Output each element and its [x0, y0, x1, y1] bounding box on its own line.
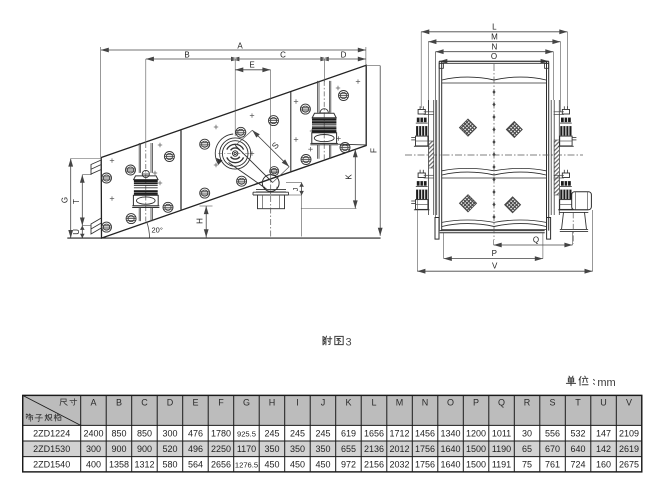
svg-text:900: 900: [137, 444, 152, 454]
svg-text:556: 556: [545, 429, 560, 439]
svg-text:1756: 1756: [415, 460, 435, 470]
svg-text:619: 619: [341, 429, 356, 439]
svg-text:147: 147: [596, 429, 611, 439]
svg-text:2656: 2656: [211, 460, 231, 470]
svg-text:B: B: [184, 50, 189, 59]
svg-text:P: P: [473, 398, 479, 408]
svg-text:1712: 1712: [389, 429, 409, 439]
svg-text:O: O: [447, 398, 454, 408]
svg-text:1200: 1200: [466, 429, 486, 439]
svg-text:160: 160: [596, 460, 611, 470]
svg-text:2619: 2619: [619, 444, 639, 454]
svg-text:1500: 1500: [466, 460, 486, 470]
svg-text:G: G: [60, 197, 69, 203]
svg-text:65: 65: [522, 444, 532, 454]
svg-text:761: 761: [545, 460, 560, 470]
svg-text:S: S: [549, 398, 555, 408]
svg-text:1312: 1312: [134, 460, 154, 470]
svg-text:C: C: [141, 398, 148, 408]
svg-text:1500: 1500: [466, 444, 486, 454]
svg-text:670: 670: [545, 444, 560, 454]
svg-text:1656: 1656: [364, 429, 384, 439]
svg-text:J: J: [293, 188, 300, 192]
svg-text:640: 640: [570, 444, 585, 454]
svg-text:580: 580: [162, 460, 177, 470]
svg-text:C: C: [280, 50, 286, 59]
svg-text:655: 655: [341, 444, 356, 454]
svg-text:850: 850: [137, 429, 152, 439]
svg-text:350: 350: [290, 444, 305, 454]
svg-text:U: U: [72, 229, 81, 235]
svg-text:1640: 1640: [440, 460, 460, 470]
svg-text:350: 350: [264, 444, 279, 454]
svg-text:30: 30: [522, 429, 532, 439]
svg-text:1456: 1456: [415, 429, 435, 439]
svg-text:900: 900: [111, 444, 126, 454]
svg-text:925.5: 925.5: [237, 430, 256, 439]
svg-text:N: N: [422, 398, 429, 408]
svg-text:496: 496: [188, 444, 203, 454]
svg-text:450: 450: [315, 460, 330, 470]
svg-text:K: K: [345, 398, 351, 408]
svg-text:1780: 1780: [211, 429, 231, 439]
svg-text:2400: 2400: [83, 429, 103, 439]
svg-text:564: 564: [188, 460, 203, 470]
svg-text:H: H: [196, 218, 205, 224]
svg-text:350: 350: [315, 444, 330, 454]
svg-text:L: L: [492, 23, 497, 32]
svg-text:T: T: [575, 398, 581, 408]
svg-text:Q: Q: [498, 398, 505, 408]
svg-text:1170: 1170: [237, 444, 256, 454]
svg-text:B: B: [116, 398, 122, 408]
svg-text:450: 450: [290, 460, 305, 470]
svg-text:450: 450: [264, 460, 279, 470]
svg-text:3: 3: [345, 336, 351, 348]
svg-text:V: V: [492, 262, 498, 271]
svg-text:mm: mm: [597, 377, 615, 389]
svg-text:D: D: [167, 398, 174, 408]
svg-text:1358: 1358: [109, 460, 129, 470]
svg-text:O: O: [491, 52, 497, 61]
svg-text:1756: 1756: [415, 444, 435, 454]
svg-text:U: U: [600, 398, 607, 408]
svg-text:T: T: [72, 199, 81, 204]
svg-text:1640: 1640: [440, 444, 460, 454]
svg-text:532: 532: [570, 429, 585, 439]
svg-text:1276.5: 1276.5: [235, 461, 258, 470]
svg-text:2675: 2675: [619, 460, 639, 470]
svg-text:476: 476: [188, 429, 203, 439]
svg-text:G: G: [243, 398, 250, 408]
svg-text:E: E: [249, 61, 254, 70]
svg-text:75: 75: [522, 460, 532, 470]
svg-text:2032: 2032: [389, 460, 409, 470]
svg-text:K: K: [345, 174, 354, 180]
svg-text:2ZD1224: 2ZD1224: [33, 429, 70, 439]
svg-text:V: V: [626, 398, 632, 408]
svg-text:2012: 2012: [389, 444, 409, 454]
svg-text:245: 245: [290, 429, 305, 439]
svg-text:724: 724: [570, 460, 585, 470]
svg-text:E: E: [192, 398, 198, 408]
svg-text:A: A: [237, 41, 243, 50]
svg-text:1190: 1190: [492, 444, 511, 454]
svg-text:850: 850: [111, 429, 126, 439]
svg-text:M: M: [491, 33, 498, 42]
svg-text:2ZD1540: 2ZD1540: [33, 460, 70, 470]
svg-text:300: 300: [162, 429, 177, 439]
svg-text:2ZD1530: 2ZD1530: [33, 444, 70, 454]
svg-text:M: M: [396, 398, 404, 408]
svg-text:N: N: [492, 43, 498, 52]
svg-text:F: F: [370, 148, 379, 153]
svg-text:520: 520: [162, 444, 177, 454]
svg-text:I: I: [296, 398, 299, 408]
svg-text:142: 142: [596, 444, 611, 454]
svg-text:245: 245: [264, 429, 279, 439]
svg-text:245: 245: [315, 429, 330, 439]
svg-text:L: L: [371, 398, 376, 408]
svg-text:1340: 1340: [440, 429, 460, 439]
svg-text:J: J: [321, 398, 326, 408]
svg-text:P: P: [492, 249, 497, 258]
svg-text:D: D: [341, 50, 347, 59]
svg-text:H: H: [269, 398, 276, 408]
svg-text:2109: 2109: [619, 429, 639, 439]
svg-text:2156: 2156: [364, 460, 384, 470]
svg-text:400: 400: [86, 460, 101, 470]
svg-text:2250: 2250: [211, 444, 231, 454]
svg-text:2136: 2136: [364, 444, 384, 454]
svg-text:Q: Q: [533, 236, 539, 245]
svg-text:20°: 20°: [152, 225, 163, 234]
svg-text:A: A: [90, 398, 96, 408]
svg-text:R: R: [524, 398, 531, 408]
svg-text:1011: 1011: [492, 429, 511, 439]
svg-text:300: 300: [86, 444, 101, 454]
svg-text:F: F: [218, 398, 224, 408]
svg-text:972: 972: [341, 460, 356, 470]
svg-text:1191: 1191: [492, 460, 511, 470]
